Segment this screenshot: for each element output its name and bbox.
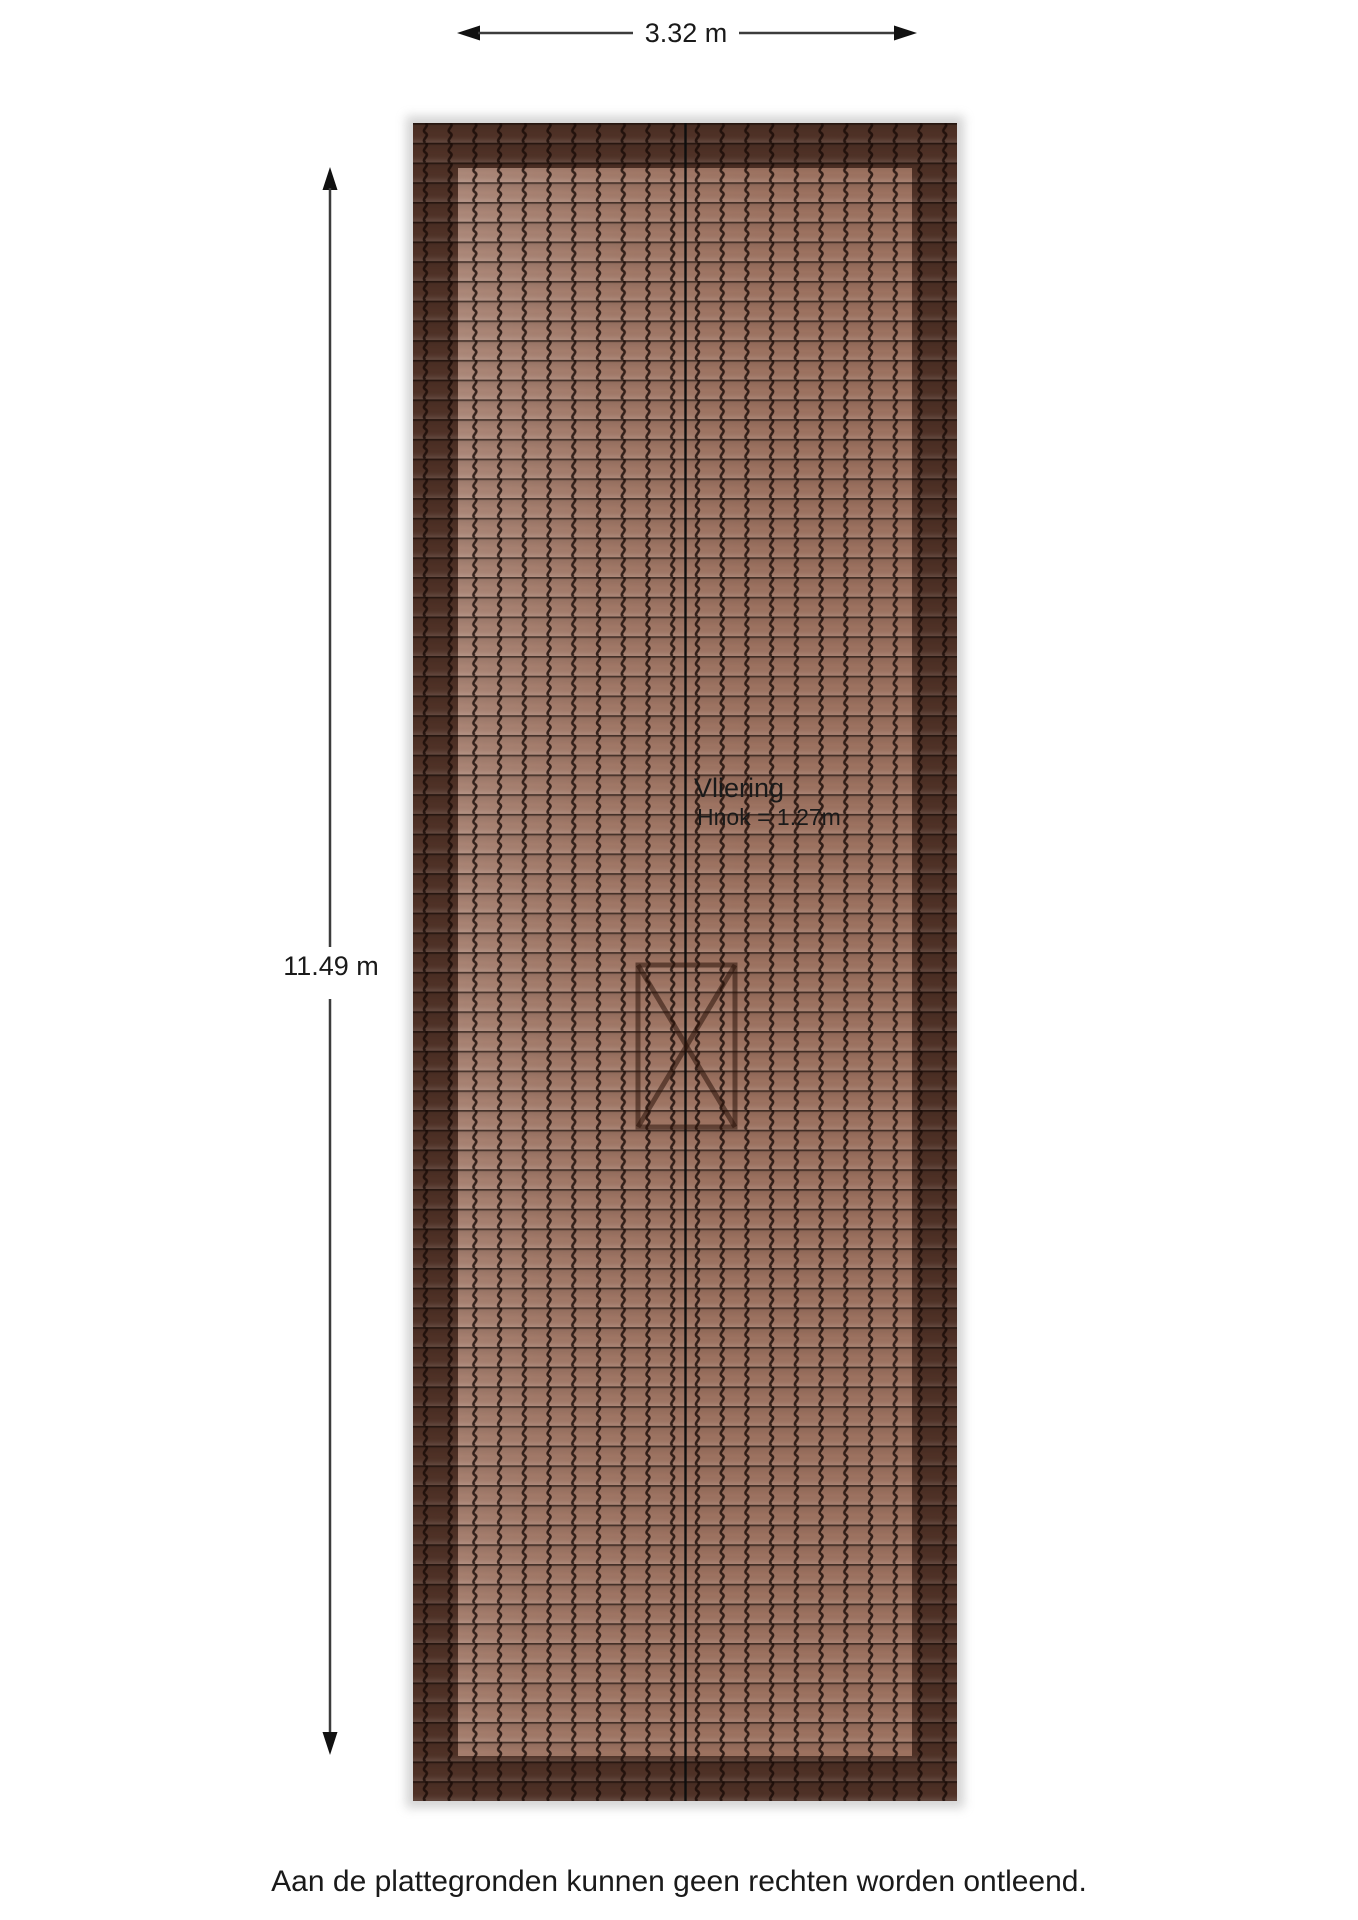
room-label: Vliering xyxy=(694,773,784,803)
ridge-height-label: Hnok = 1.27m xyxy=(697,804,841,830)
disclaimer-text: Aan de plattegronden kunnen geen rechten… xyxy=(271,1865,1087,1898)
arrow-up-icon xyxy=(323,167,338,190)
height-dimension: 11.49 m xyxy=(283,167,379,1755)
roof-plan: Vliering Hnok = 1.27m xyxy=(406,116,964,1808)
height-dimension-label: 11.49 m xyxy=(283,951,379,981)
floorplan-drawing: 3.32 m 11.49 m Vliering Hnok = xyxy=(0,0,1358,1920)
width-dimension: 3.32 m xyxy=(457,18,917,48)
width-dimension-label: 3.32 m xyxy=(645,18,728,48)
arrow-down-icon xyxy=(323,1732,338,1755)
arrow-left-icon xyxy=(457,26,480,41)
arrow-right-icon xyxy=(894,26,917,41)
floorplan-page: 3.32 m 11.49 m Vliering Hnok = xyxy=(0,0,1358,1920)
